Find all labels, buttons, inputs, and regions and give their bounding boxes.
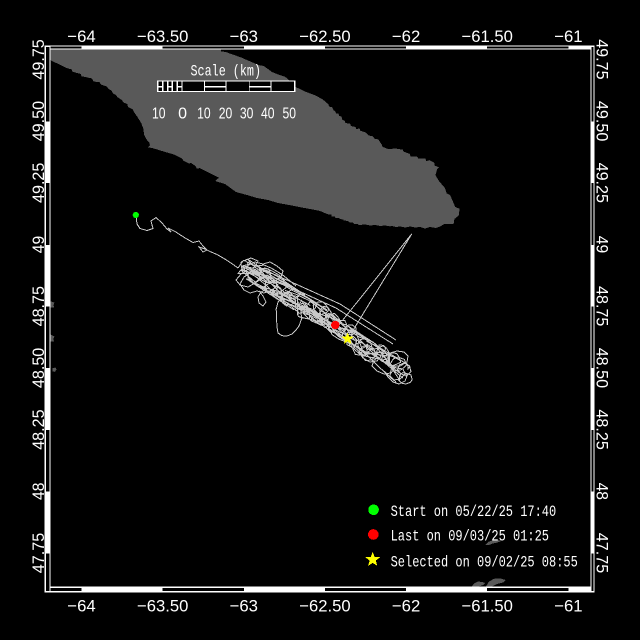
- svg-text:48: 48: [593, 483, 612, 500]
- svg-text:−62.50: −62.50: [299, 596, 350, 615]
- svg-text:49.75: 49.75: [593, 39, 612, 79]
- svg-text:0: 0: [178, 105, 187, 122]
- svg-text:48.75: 48.75: [593, 286, 612, 326]
- svg-text:48.25: 48.25: [29, 409, 48, 449]
- svg-text:48.50: 48.50: [29, 348, 48, 388]
- svg-text:20: 20: [219, 105, 233, 122]
- svg-text:−62: −62: [392, 27, 420, 46]
- svg-text:30: 30: [240, 105, 254, 122]
- svg-text:−64: −64: [67, 27, 95, 46]
- svg-text:49.50: 49.50: [29, 101, 48, 141]
- svg-text:−63: −63: [230, 27, 258, 46]
- svg-text:40: 40: [261, 105, 275, 122]
- svg-text:49: 49: [29, 236, 48, 253]
- svg-text:−61: −61: [554, 596, 582, 615]
- svg-text:−63.50: −63.50: [137, 27, 188, 46]
- svg-text:10: 10: [197, 105, 211, 122]
- svg-text:−61: −61: [554, 27, 582, 46]
- svg-text:−64: −64: [67, 596, 95, 615]
- svg-text:48: 48: [29, 483, 48, 500]
- svg-text:−61.50: −61.50: [462, 27, 513, 46]
- svg-text:10: 10: [152, 105, 166, 122]
- svg-text:−63: −63: [230, 596, 258, 615]
- svg-text:48.50: 48.50: [593, 348, 612, 388]
- svg-text:Start on 05/22/25 17:40: Start on 05/22/25 17:40: [391, 503, 557, 521]
- svg-text:50: 50: [283, 105, 297, 122]
- svg-text:−61.50: −61.50: [462, 596, 513, 615]
- svg-text:−62.50: −62.50: [299, 27, 350, 46]
- svg-text:Last on 09/03/25 01:25: Last on 09/03/25 01:25: [391, 527, 549, 545]
- svg-text:49.25: 49.25: [593, 163, 612, 203]
- svg-text:Selected on 09/02/25 08:55: Selected on 09/02/25 08:55: [391, 553, 578, 571]
- svg-text:47.75: 47.75: [29, 533, 48, 573]
- svg-text:47.75: 47.75: [593, 533, 612, 573]
- svg-text:Scale (km): Scale (km): [191, 62, 262, 80]
- svg-text:49: 49: [593, 236, 612, 253]
- svg-text:48.75: 48.75: [29, 286, 48, 326]
- svg-text:−62: −62: [392, 596, 420, 615]
- svg-text:−63.50: −63.50: [137, 596, 188, 615]
- svg-text:49.25: 49.25: [29, 163, 48, 203]
- svg-text:49.50: 49.50: [593, 101, 612, 141]
- svg-text:48.25: 48.25: [593, 409, 612, 449]
- svg-text:49.75: 49.75: [29, 39, 48, 79]
